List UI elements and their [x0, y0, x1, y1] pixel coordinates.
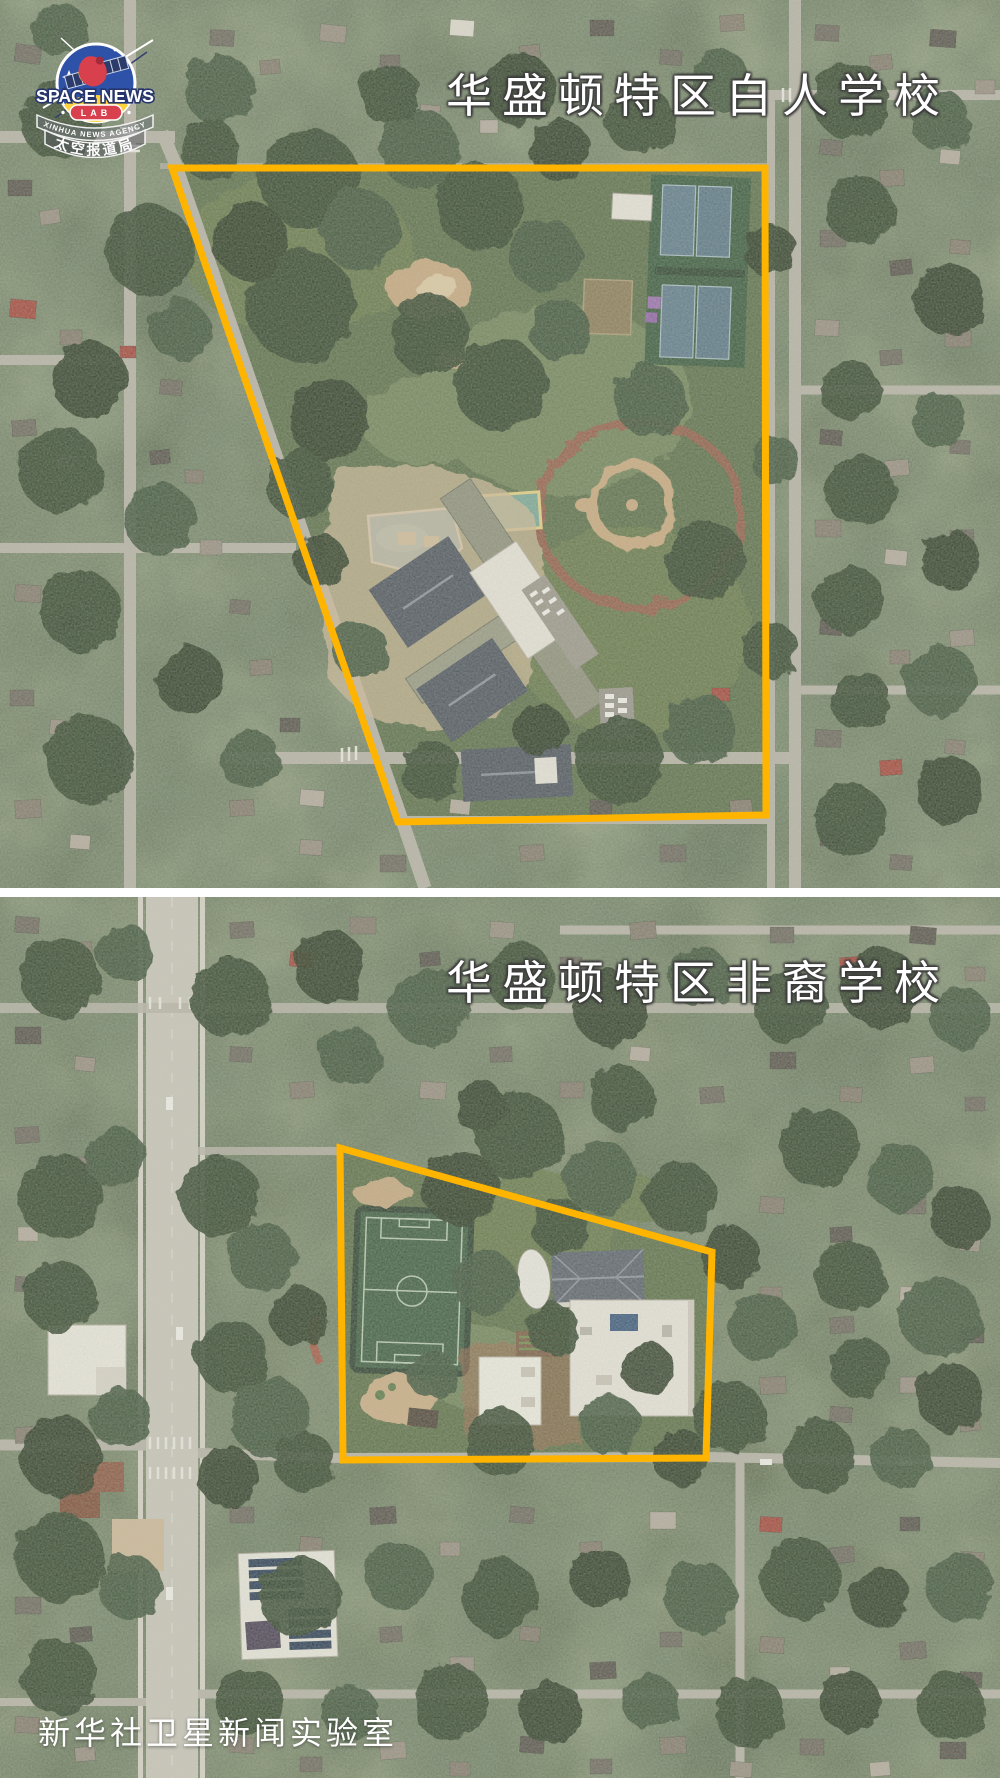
panel-title-bottom: 华盛顿特区非裔学校	[446, 947, 950, 1013]
satellite-comparison-image: 华盛顿特区白人学校	[0, 0, 1000, 1778]
satellite-image-bottom	[0, 897, 1000, 1778]
logo-title-text: SPACE NEWS	[36, 86, 154, 106]
svg-text:LAB: LAB	[81, 108, 112, 118]
panel-divider	[0, 888, 1000, 897]
space-news-lab-logo: SPACE NEWS LAB XINHUA NEWS AGENCY	[25, 8, 165, 158]
panel-bottom-black-school: 华盛顿特区非裔学校 新华社卫星新闻实验室	[0, 897, 1000, 1778]
panel-top-white-school: 华盛顿特区白人学校	[0, 0, 1000, 888]
lab-banner: LAB	[61, 105, 130, 120]
panel-title-top: 华盛顿特区白人学校	[446, 60, 950, 126]
xinhua-lab-watermark: 新华社卫星新闻实验室	[38, 1708, 398, 1754]
